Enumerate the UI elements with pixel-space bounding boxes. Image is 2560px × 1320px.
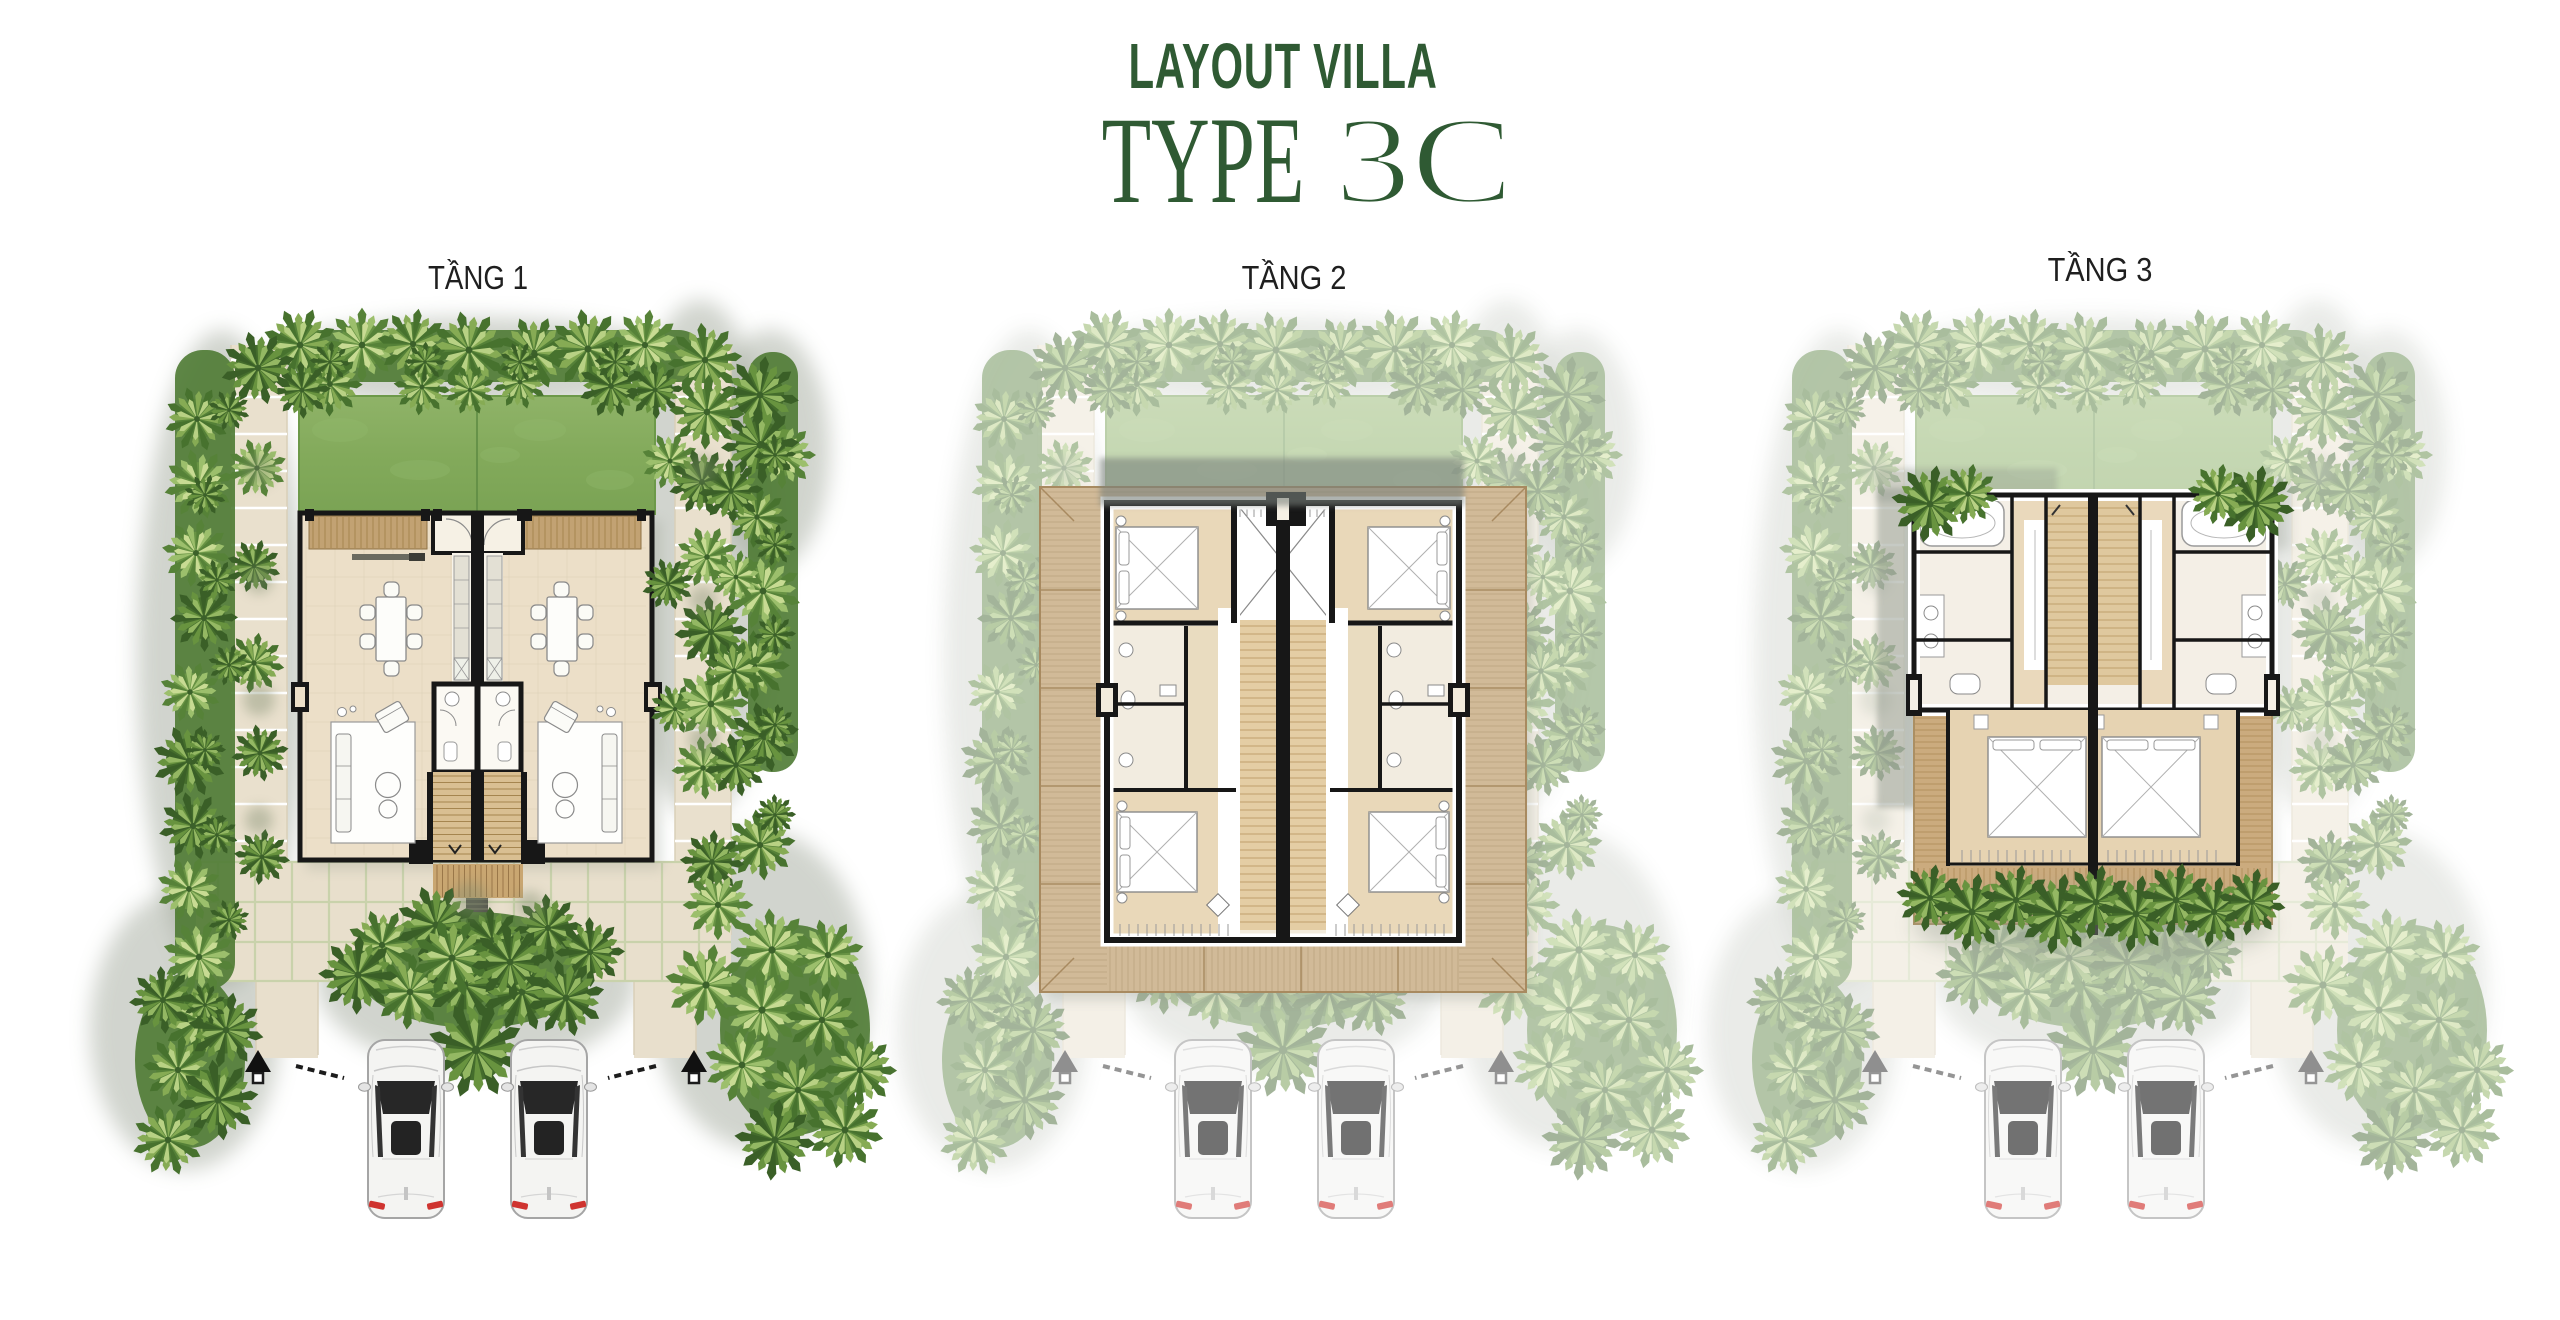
svg-text:TẦNG 2: TẦNG 2 <box>1242 259 1347 296</box>
svg-text:3C: 3C <box>1334 93 1513 230</box>
svg-text:TẦNG 1: TẦNG 1 <box>428 259 528 297</box>
svg-text:TYPE: TYPE <box>1102 92 1305 229</box>
svg-text:TẦNG 3: TẦNG 3 <box>2048 251 2153 288</box>
